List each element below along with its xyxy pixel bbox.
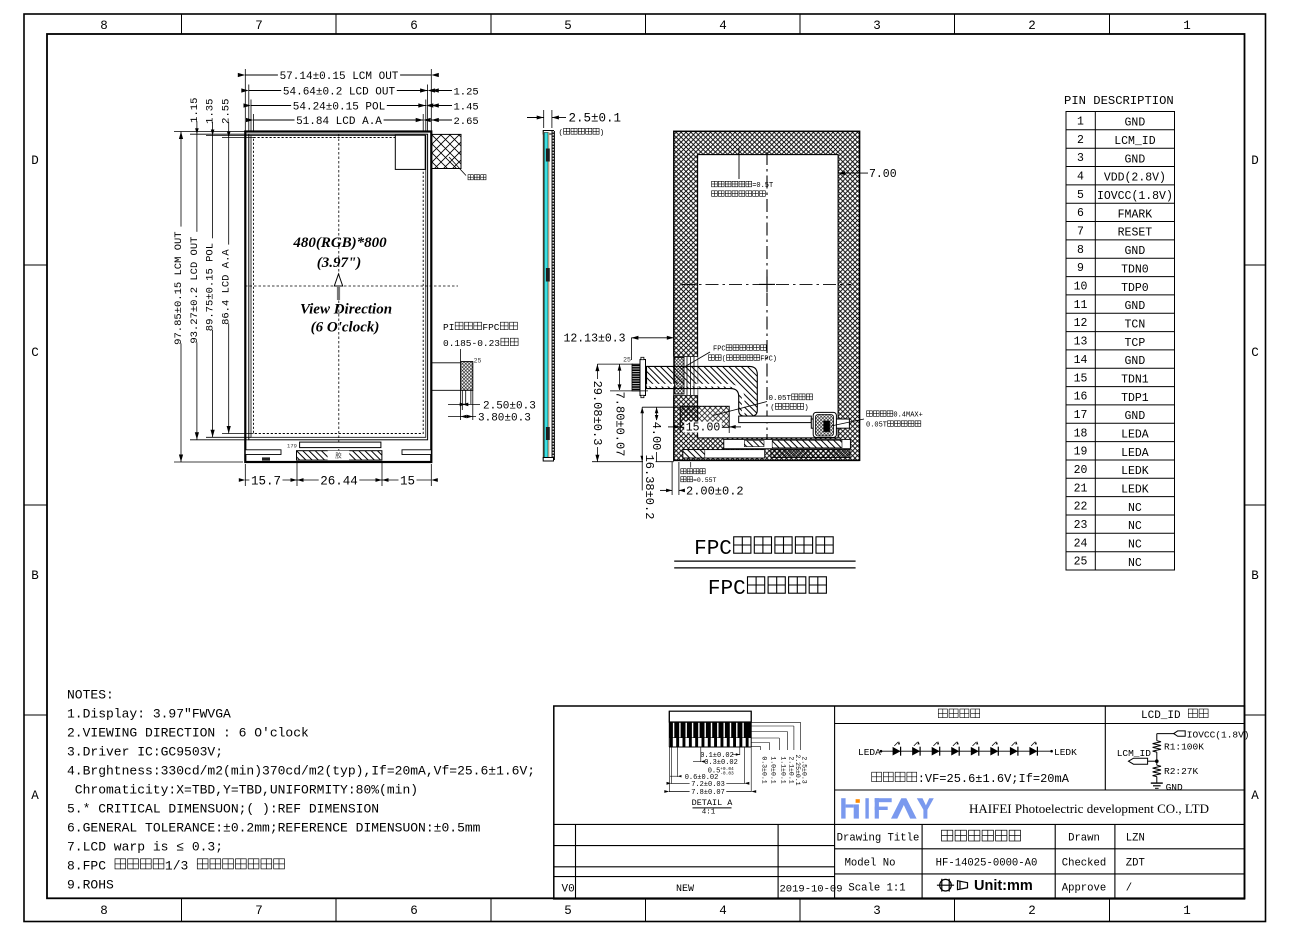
svg-text:FPC): FPC) bbox=[760, 356, 777, 364]
svg-text:=0.5T: =0.5T bbox=[752, 182, 773, 190]
svg-text:15: 15 bbox=[400, 474, 415, 488]
svg-text:54.24±0.15 POL: 54.24±0.15 POL bbox=[293, 101, 385, 113]
svg-text:C: C bbox=[31, 346, 39, 360]
svg-text:A: A bbox=[1251, 789, 1259, 803]
svg-text:23: 23 bbox=[1074, 519, 1088, 532]
svg-text:GND: GND bbox=[1125, 245, 1146, 258]
svg-text:GND: GND bbox=[1125, 410, 1146, 423]
svg-text:3.Driver IC:GC9503V;: 3.Driver IC:GC9503V; bbox=[67, 745, 223, 760]
svg-text:2.00±0.2: 2.00±0.2 bbox=[686, 484, 744, 498]
svg-text:0.3±0.1: 0.3±0.1 bbox=[761, 756, 768, 783]
svg-text:25: 25 bbox=[623, 357, 631, 364]
svg-text:LEDK: LEDK bbox=[1121, 484, 1149, 497]
svg-text:LCM_ID: LCM_ID bbox=[1114, 135, 1156, 148]
svg-text:3: 3 bbox=[1077, 152, 1084, 165]
svg-text:TDN0: TDN0 bbox=[1121, 263, 1149, 276]
svg-text:8: 8 bbox=[100, 904, 108, 918]
svg-text:PI: PI bbox=[443, 322, 454, 333]
svg-text:Drawing Title: Drawing Title bbox=[837, 833, 920, 845]
svg-text:4.00: 4.00 bbox=[649, 422, 663, 451]
svg-text:7: 7 bbox=[255, 904, 263, 918]
svg-text:4: 4 bbox=[719, 19, 727, 33]
svg-text:FPC: FPC bbox=[713, 346, 726, 354]
svg-text:2.65: 2.65 bbox=[454, 116, 479, 128]
svg-text:TDN1: TDN1 bbox=[1121, 374, 1149, 387]
svg-text:6: 6 bbox=[1077, 207, 1084, 220]
svg-text:25: 25 bbox=[1074, 556, 1088, 569]
svg-text:NC: NC bbox=[1128, 502, 1142, 515]
svg-text:IOVCC(1.8V): IOVCC(1.8V) bbox=[1097, 190, 1173, 203]
svg-text:/: / bbox=[1126, 883, 1132, 895]
svg-text:(6 O'clock): (6 O'clock) bbox=[311, 320, 380, 336]
svg-text:LCM_ID: LCM_ID bbox=[1117, 748, 1152, 759]
svg-text:(: ( bbox=[559, 130, 564, 138]
svg-text:2.5±0.1: 2.5±0.1 bbox=[569, 111, 622, 125]
svg-text:2.25±0.1: 2.25±0.1 bbox=[794, 754, 801, 785]
svg-text:PIN DESCRIPTION: PIN DESCRIPTION bbox=[1064, 94, 1174, 108]
svg-text:Approve: Approve bbox=[1062, 883, 1107, 895]
svg-text:89.75±0.15 POL: 89.75±0.15 POL bbox=[205, 243, 217, 331]
svg-text:VDD(2.8V): VDD(2.8V) bbox=[1104, 172, 1166, 185]
svg-text:5: 5 bbox=[1077, 189, 1084, 202]
svg-text:17: 17 bbox=[1074, 409, 1088, 422]
svg-text:18: 18 bbox=[1074, 427, 1088, 440]
svg-text:V0: V0 bbox=[562, 884, 575, 896]
svg-text:NC: NC bbox=[1128, 539, 1142, 552]
svg-text:IOVCC(1.8V): IOVCC(1.8V) bbox=[1187, 729, 1250, 740]
svg-text:86.4 LCD A.A: 86.4 LCD A.A bbox=[221, 249, 233, 325]
svg-text:8: 8 bbox=[100, 19, 108, 33]
svg-text:0.185-0.23: 0.185-0.23 bbox=[443, 338, 500, 349]
svg-text:B: B bbox=[1251, 569, 1259, 583]
svg-text:1/3: 1/3 bbox=[165, 859, 188, 874]
svg-text:20: 20 bbox=[1074, 464, 1088, 477]
svg-text:Model No: Model No bbox=[845, 858, 896, 870]
svg-text:R1:100K: R1:100K bbox=[1164, 742, 1204, 753]
svg-text:=0.55T: =0.55T bbox=[693, 477, 717, 484]
svg-text:NC: NC bbox=[1128, 557, 1142, 570]
svg-text:0.4MAX+: 0.4MAX+ bbox=[893, 412, 922, 420]
svg-text:Unit:mm: Unit:mm bbox=[974, 878, 1033, 894]
svg-text:LZN: LZN bbox=[1126, 833, 1145, 845]
svg-text:51.84 LCD A.A: 51.84 LCD A.A bbox=[296, 116, 382, 128]
svg-text:FPC: FPC bbox=[694, 538, 732, 561]
svg-text:2019-10-09: 2019-10-09 bbox=[780, 883, 843, 895]
svg-text:D: D bbox=[1251, 154, 1259, 168]
svg-text:179: 179 bbox=[287, 442, 297, 449]
svg-text:NEW: NEW bbox=[676, 884, 694, 895]
svg-text:1: 1 bbox=[1077, 116, 1084, 129]
svg-text:): ) bbox=[600, 130, 605, 138]
svg-text:ZDT: ZDT bbox=[1126, 858, 1145, 870]
svg-text:2: 2 bbox=[1028, 904, 1036, 918]
svg-text:1.25: 1.25 bbox=[454, 86, 479, 98]
svg-text:7: 7 bbox=[1077, 226, 1084, 239]
svg-text:LEDK: LEDK bbox=[1054, 747, 1077, 758]
svg-text:12.13±0.3: 12.13±0.3 bbox=[563, 333, 625, 346]
svg-text:GND: GND bbox=[1125, 300, 1146, 313]
svg-text:B: B bbox=[31, 569, 39, 583]
svg-text:LEDA: LEDA bbox=[1121, 429, 1149, 442]
svg-text:7.LCD warp is ≤ 0.3;: 7.LCD warp is ≤ 0.3; bbox=[67, 840, 223, 855]
svg-text:GND: GND bbox=[1125, 117, 1146, 130]
svg-text:2.5±0.3: 2.5±0.3 bbox=[801, 756, 808, 783]
svg-text:DETAIL A: DETAIL A bbox=[692, 798, 734, 808]
svg-text:TCN: TCN bbox=[1125, 318, 1146, 331]
svg-text:LEDA: LEDA bbox=[1121, 447, 1149, 460]
svg-text:D: D bbox=[31, 154, 39, 168]
svg-text:13: 13 bbox=[1074, 336, 1088, 349]
svg-text:11: 11 bbox=[1074, 299, 1088, 312]
svg-text:GND: GND bbox=[1166, 782, 1183, 793]
svg-text:21: 21 bbox=[1074, 482, 1088, 495]
svg-text:2: 2 bbox=[1028, 19, 1036, 33]
svg-text:A: A bbox=[31, 789, 39, 803]
svg-text:5.* CRITICAL DIMENSUON;( ):REF: 5.* CRITICAL DIMENSUON;( ):REF DIMENSION bbox=[67, 802, 379, 817]
svg-text:LEDK: LEDK bbox=[1121, 465, 1149, 478]
svg-text:26.44: 26.44 bbox=[320, 474, 358, 488]
svg-text:93.27±0.2 LCD OUT: 93.27±0.2 LCD OUT bbox=[189, 237, 201, 344]
svg-text:Chromaticity:X=TBD,Y=TBD,UNIFO: Chromaticity:X=TBD,Y=TBD,UNIFORMITY:80%(… bbox=[75, 783, 418, 798]
svg-text:97.85±0.15 LCM OUT: 97.85±0.15 LCM OUT bbox=[173, 231, 185, 344]
svg-text:16: 16 bbox=[1074, 391, 1088, 404]
svg-text:GND: GND bbox=[1125, 355, 1146, 368]
svg-text:15.00: 15.00 bbox=[686, 422, 721, 435]
svg-text:15.7: 15.7 bbox=[251, 474, 281, 488]
svg-text:2.55: 2.55 bbox=[221, 99, 233, 124]
svg-text:7.00: 7.00 bbox=[869, 168, 897, 181]
svg-text:24: 24 bbox=[1074, 537, 1088, 550]
svg-text:2: 2 bbox=[1077, 134, 1084, 147]
svg-text:HAIFEI Photoelectric developme: HAIFEI Photoelectric development CO., LT… bbox=[969, 801, 1209, 816]
svg-text:3.80±0.3: 3.80±0.3 bbox=[478, 413, 531, 425]
svg-text:LEDA: LEDA bbox=[858, 747, 881, 758]
svg-text:4.Brghtness:330cd/m2(min)370cd: 4.Brghtness:330cd/m2(min)370cd/m2(typ),I… bbox=[67, 764, 535, 779]
svg-text:9: 9 bbox=[1077, 262, 1084, 275]
svg-text:4: 4 bbox=[719, 904, 727, 918]
svg-text:0.05T: 0.05T bbox=[866, 422, 887, 430]
svg-text:GND: GND bbox=[1125, 153, 1146, 166]
svg-text:1.1±0.1: 1.1±0.1 bbox=[779, 756, 786, 783]
svg-text:1: 1 bbox=[1183, 19, 1191, 33]
svg-text:胶: 胶 bbox=[335, 451, 342, 460]
svg-text:): ) bbox=[804, 405, 809, 413]
svg-text:8.FPC: 8.FPC bbox=[67, 859, 106, 874]
svg-text:5: 5 bbox=[564, 904, 572, 918]
svg-text:7.8±0.07: 7.8±0.07 bbox=[691, 789, 725, 797]
svg-text:C: C bbox=[1251, 346, 1259, 360]
svg-text:7.2±0.03: 7.2±0.03 bbox=[691, 781, 725, 789]
svg-text:4:1: 4:1 bbox=[702, 809, 716, 817]
svg-text:(3.97"): (3.97") bbox=[317, 255, 362, 271]
svg-text:R2:27K: R2:27K bbox=[1164, 766, 1199, 777]
svg-text:54.64±0.2 LCD OUT: 54.64±0.2 LCD OUT bbox=[283, 86, 396, 98]
svg-text:14: 14 bbox=[1074, 354, 1088, 367]
svg-text:5: 5 bbox=[564, 19, 572, 33]
svg-text:FPC: FPC bbox=[482, 322, 499, 333]
svg-text:25: 25 bbox=[474, 358, 482, 365]
svg-text:4: 4 bbox=[1077, 171, 1084, 184]
svg-text:16.38±0.2: 16.38±0.2 bbox=[642, 455, 656, 520]
svg-text:TDP0: TDP0 bbox=[1121, 282, 1149, 295]
svg-text:8: 8 bbox=[1077, 244, 1084, 257]
svg-text:-0.03: -0.03 bbox=[720, 770, 734, 776]
svg-text:2.VIEWING DIRECTION : 6 O'cloc: 2.VIEWING DIRECTION : 6 O'clock bbox=[67, 726, 309, 741]
svg-text:(: ( bbox=[770, 405, 775, 413]
svg-text:NOTES:: NOTES: bbox=[67, 688, 114, 703]
svg-text:1.15: 1.15 bbox=[189, 98, 201, 123]
svg-text:TDP1: TDP1 bbox=[1121, 392, 1149, 405]
svg-text:(: ( bbox=[722, 356, 726, 364]
svg-text:View Direction: View Direction bbox=[300, 302, 392, 318]
svg-text:FPC: FPC bbox=[708, 578, 746, 601]
svg-text:3: 3 bbox=[873, 19, 881, 33]
svg-text:1.45: 1.45 bbox=[454, 101, 479, 113]
svg-text:1: 1 bbox=[1183, 904, 1191, 918]
svg-text:LCD_ID: LCD_ID bbox=[1141, 710, 1181, 722]
svg-text:TCP: TCP bbox=[1125, 337, 1146, 350]
svg-text:Checked: Checked bbox=[1062, 858, 1107, 870]
svg-text:1.0±0.1: 1.0±0.1 bbox=[770, 756, 777, 783]
svg-text:57.14±0.15 LCM OUT: 57.14±0.15 LCM OUT bbox=[280, 71, 399, 83]
svg-text:480(RGB)*800: 480(RGB)*800 bbox=[292, 235, 387, 251]
svg-text:6: 6 bbox=[410, 19, 418, 33]
svg-text:19: 19 bbox=[1074, 446, 1088, 459]
svg-text:10: 10 bbox=[1074, 281, 1088, 294]
svg-text:1.35: 1.35 bbox=[205, 99, 217, 124]
svg-text:0.05T: 0.05T bbox=[769, 395, 792, 403]
svg-text:2.50±0.3: 2.50±0.3 bbox=[483, 401, 536, 413]
svg-text:7: 7 bbox=[255, 19, 263, 33]
svg-text:22: 22 bbox=[1074, 501, 1088, 514]
svg-text:1.Display: 3.97″FWVGA: 1.Display: 3.97″FWVGA bbox=[67, 707, 231, 722]
svg-text:HF-14025-0000-A0: HF-14025-0000-A0 bbox=[936, 858, 1038, 870]
svg-text:6: 6 bbox=[410, 904, 418, 918]
svg-text:3: 3 bbox=[873, 904, 881, 918]
svg-text:FMARK: FMARK bbox=[1118, 208, 1153, 221]
svg-text::VF=25.6±1.6V;If=20mA: :VF=25.6±1.6V;If=20mA bbox=[918, 772, 1070, 786]
svg-text:RESET: RESET bbox=[1118, 227, 1153, 240]
svg-text:2.1±0.1: 2.1±0.1 bbox=[787, 756, 794, 783]
svg-text:12: 12 bbox=[1074, 317, 1088, 330]
svg-text:NC: NC bbox=[1128, 520, 1142, 533]
svg-text:Drawn: Drawn bbox=[1068, 833, 1100, 845]
svg-text:Scale 1:1: Scale 1:1 bbox=[848, 883, 905, 895]
svg-text:29.08±0.3: 29.08±0.3 bbox=[590, 381, 604, 446]
svg-text:7.80±0.07: 7.80±0.07 bbox=[612, 392, 626, 457]
svg-text:9.ROHS: 9.ROHS bbox=[67, 878, 114, 893]
svg-text:6.GENERAL TOLERANCE:±0.2mm;REF: 6.GENERAL TOLERANCE:±0.2mm;REFERENCE DIM… bbox=[67, 821, 481, 836]
svg-text:15: 15 bbox=[1074, 372, 1088, 385]
